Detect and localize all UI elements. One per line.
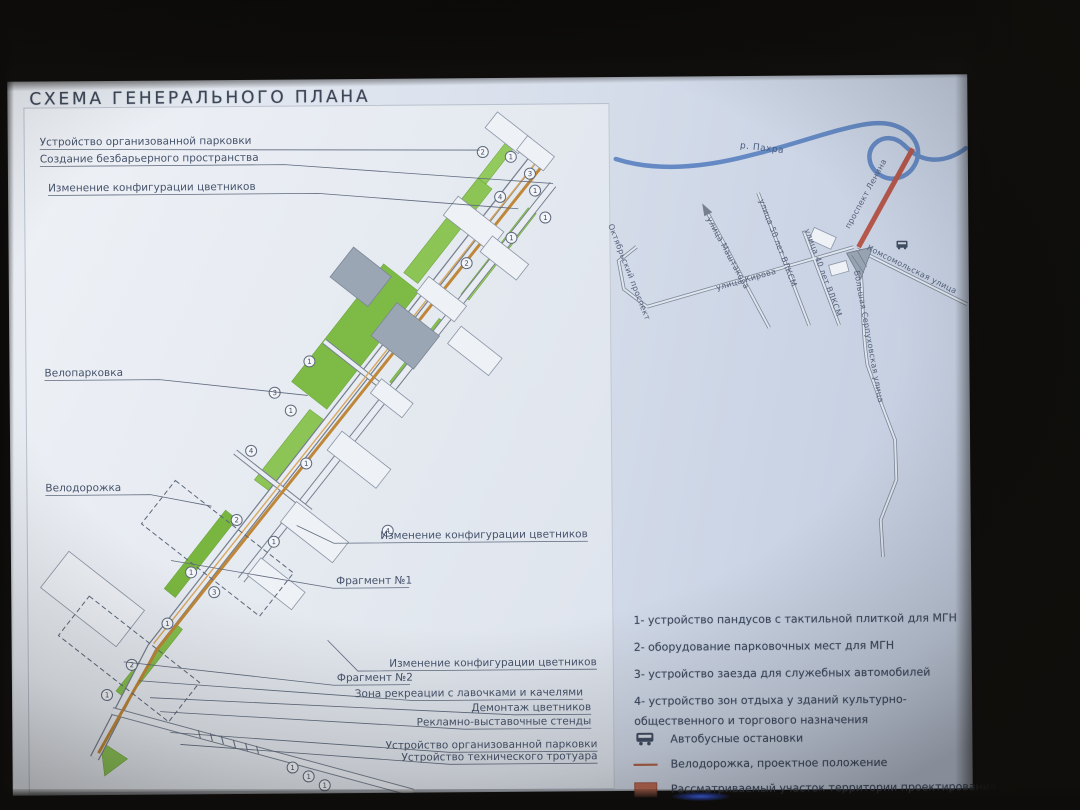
note-item: 2- оборудование парковочных мест для МГН (634, 635, 966, 658)
bus-stop-icon (896, 241, 907, 250)
plan-marker-number: 3 (212, 589, 217, 597)
plan-label: Велодорожка (45, 482, 121, 495)
plan-marker-number: 3 (528, 170, 533, 178)
map-street-labels: Октябрьский проспект улица Кирова улица … (606, 157, 960, 406)
plan-marker-number: 1 (533, 187, 538, 195)
street-label: проспект Ленина (843, 158, 888, 231)
plan-label: Демонтаж цветников (471, 701, 591, 714)
plan-label: Изменение конфигурации цветников (380, 528, 588, 542)
plan-label: Изменение конфигурации цветников (48, 181, 256, 195)
legend-row: Велодорожка, проектное положение (632, 749, 996, 777)
street-label: Октябрьский проспект (606, 223, 652, 322)
building (448, 326, 503, 375)
monitor-led (672, 792, 730, 801)
street-label: Комсомольская улица (865, 243, 958, 295)
street-arrowhead (702, 203, 712, 216)
screen-bottom-edge (0, 789, 1080, 810)
plan-label: Создание безбарьерного пространства (40, 152, 259, 166)
plan-marker-number: 4 (498, 193, 503, 201)
plan-marker-number: 1 (306, 773, 311, 781)
plan-marker-number: 4 (249, 447, 254, 455)
plan-label: Рекламно-выставочные стенды (417, 715, 592, 728)
plan-marker-number: 2 (481, 148, 486, 156)
plan-marker-number: 1 (509, 153, 514, 161)
master-plan: 213141121314121413121111 (37, 111, 598, 795)
plan-marker-number: 1 (105, 691, 110, 699)
street-label: Большая Серпуховская улица (852, 270, 885, 404)
plan-marker-number: 1 (543, 214, 548, 222)
legend-row: Автобусные остановки (632, 724, 996, 752)
plan-marker-number: 1 (165, 620, 170, 628)
plan-marker-number: 1 (189, 569, 194, 577)
plan-label: Фрагмент №1 (336, 575, 412, 588)
plan-marker-number: 1 (509, 234, 514, 242)
legend-label: Велодорожка, проектное положение (671, 756, 888, 771)
notes-list: 1- устройство пандусов с тактильной плит… (633, 608, 966, 739)
plan-marker-number: 2 (234, 516, 239, 524)
slide: 213141121314121413121111 (7, 74, 973, 796)
location-map: р. Пахра (605, 122, 969, 559)
map-streets (618, 191, 969, 559)
photo-of-projected-slide: 213141121314121413121111 (0, 0, 1080, 810)
plan-marker-number: 1 (307, 358, 312, 366)
bike-line-icon (633, 760, 659, 768)
plan-label: Фрагмент №2 (337, 672, 413, 685)
plan-label: Устройство технического тротуара (401, 750, 597, 764)
plan-label: Устройство организованной парковки (40, 135, 252, 149)
bus-icon (632, 732, 658, 747)
hub-block (829, 261, 849, 276)
plan-marker-number: 1 (290, 764, 295, 772)
building (280, 502, 348, 563)
legend-label: Автобусные остановки (670, 732, 803, 746)
plan-marker-number: 3 (272, 389, 277, 397)
bottom-cross-road-surface (112, 709, 413, 795)
plan-marker-number: 1 (304, 460, 309, 468)
building (247, 558, 305, 610)
plan-label: Зона рекреации с лавочками и качелями (355, 686, 583, 700)
screen-top-edge (0, 0, 1080, 92)
screen-left-edge (0, 0, 14, 810)
plan-marker-number: 2 (464, 260, 469, 268)
note-item: 1- устройство пандусов с тактильной плит… (633, 608, 965, 631)
screen-right-edge (955, 0, 1080, 810)
plan-label: Велопарковка (44, 367, 123, 380)
note-item: 3- устройство заезда для служебных автом… (634, 662, 966, 685)
plan-label: Изменение конфигурации цветников (389, 656, 597, 670)
plan-marker-number: 1 (289, 407, 294, 415)
plan-marker-number: 1 (272, 538, 277, 546)
